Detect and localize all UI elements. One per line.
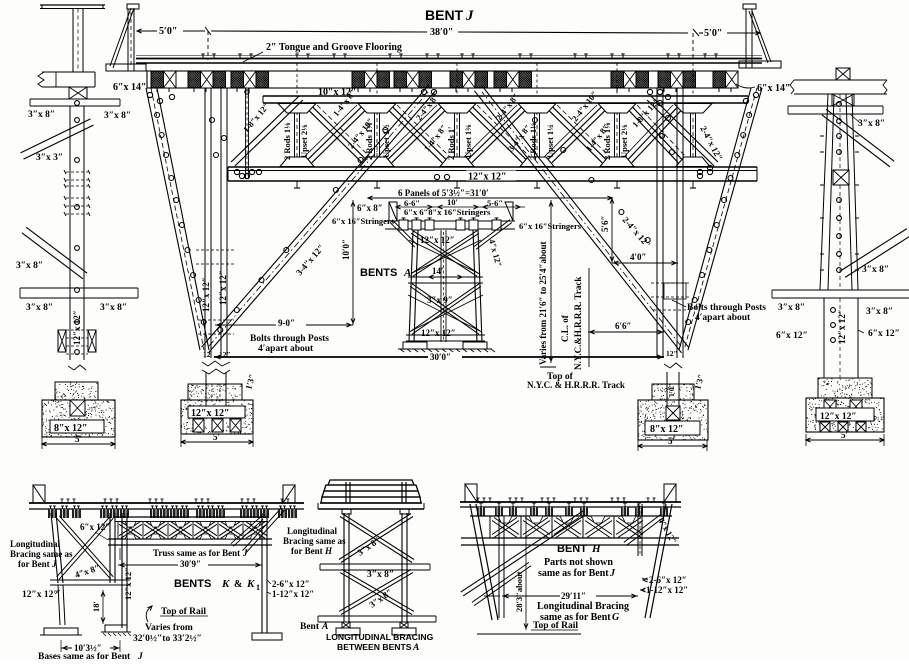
svg-text:12″x 12″: 12″x 12″ — [837, 309, 847, 344]
svg-text:12: 12 — [203, 350, 211, 359]
svg-text:Varies from: Varies from — [145, 623, 193, 633]
svg-text:2-6″x 12″: 2-6″x 12″ — [649, 575, 687, 585]
svg-text:8″x 12″: 8″x 12″ — [54, 423, 88, 434]
svg-text:BETWEEN BENTS: BETWEEN BENTS — [337, 642, 412, 652]
svg-text:6″x 6″8″x 16″Stringers: 6″x 6″8″x 16″Stringers — [404, 207, 491, 217]
svg-text:Upset 1¼: Upset 1¼ — [545, 124, 555, 158]
svg-text:4′apart about: 4′apart about — [695, 313, 751, 323]
svg-text:BENTS: BENTS — [360, 267, 397, 279]
svg-text:12″x 12″: 12″x 12″ — [468, 172, 507, 183]
svg-text:5′6″: 5′6″ — [600, 215, 610, 232]
svg-text:BENTS: BENTS — [174, 578, 211, 590]
svg-text:3″x 8″: 3″x 8″ — [104, 111, 131, 121]
svg-text:3″x 8″: 3″x 8″ — [100, 303, 127, 313]
svg-text:2 Rods 1⅛: 2 Rods 1⅛ — [282, 122, 292, 160]
svg-text:3″x 8″: 3″x 8″ — [858, 119, 885, 129]
svg-text:12″x 12″: 12″x 12″ — [820, 412, 857, 422]
svg-text:Truss same as for Bent: Truss same as for Bent — [153, 548, 240, 558]
svg-text:12″x 12″: 12″x 12″ — [191, 408, 230, 419]
svg-text:3″x 8″: 3″x 8″ — [866, 307, 893, 317]
svg-text:Bolts through Posts: Bolts through Posts — [250, 334, 329, 344]
svg-text:5′: 5′ — [668, 436, 675, 446]
svg-text:LONGITUDINAL BRACING: LONGITUDINAL BRACING — [326, 632, 434, 642]
svg-text:1-12″x 12″: 1-12″x 12″ — [272, 589, 314, 599]
svg-text:3″x 8″: 3″x 8″ — [28, 110, 55, 120]
svg-text:G: G — [612, 612, 620, 623]
svg-text:12″x 12″: 12″x 12″ — [218, 270, 228, 305]
svg-text:K: K — [246, 578, 255, 590]
svg-text:18′: 18′ — [91, 601, 101, 612]
svg-text:N.Y.C. & H.R.R.R. Track: N.Y.C. & H.R.R.R. Track — [527, 380, 625, 390]
svg-text:same as for Bent: same as for Bent — [538, 568, 609, 579]
svg-text:J: J — [137, 652, 143, 661]
svg-text:30′9″: 30′9″ — [180, 559, 201, 569]
svg-text:3″x 8″: 3″x 8″ — [862, 265, 889, 275]
svg-text:A: A — [403, 267, 411, 279]
svg-text:Upset 2⅛: Upset 2⅛ — [619, 124, 629, 158]
svg-text:14′: 14′ — [432, 266, 444, 276]
svg-text:30′0″: 30′0″ — [430, 352, 451, 362]
svg-text:Bracing same as: Bracing same as — [283, 536, 346, 546]
svg-text:12″: 12″ — [219, 350, 231, 359]
svg-text:&: & — [234, 579, 242, 590]
svg-text:3″x 8″: 3″x 8″ — [16, 261, 43, 271]
svg-text:6″x 12″: 6″x 12″ — [868, 329, 900, 339]
svg-text:12″x 12″: 12″x 12″ — [421, 328, 456, 338]
svg-text:Upset 2⅛: Upset 2⅛ — [299, 124, 309, 158]
svg-text:10′0″: 10′0″ — [341, 239, 351, 260]
svg-text:for Bent: for Bent — [18, 559, 50, 569]
svg-text:2″ Tongue and Groove Flooring: 2″ Tongue and Groove Flooring — [266, 42, 402, 53]
svg-text:BENT: BENT — [557, 543, 587, 555]
svg-text:for Bent: for Bent — [291, 546, 323, 556]
svg-text:12″x 12″: 12″x 12″ — [420, 235, 455, 245]
svg-text:A: A — [321, 622, 328, 632]
svg-text:6″x 14″: 6″x 14″ — [113, 82, 147, 93]
svg-text:N.Y.C.&H.R.R.R. Track: N.Y.C.&H.R.R.R. Track — [573, 277, 583, 370]
svg-text:38′0″: 38′0″ — [430, 27, 453, 38]
svg-text:3″x 8″: 3″x 8″ — [26, 303, 53, 313]
svg-text:4′apart about: 4′apart about — [258, 344, 314, 354]
svg-text:4′0″: 4′0″ — [630, 252, 647, 262]
svg-text:C.L. of: C.L. of — [560, 314, 570, 342]
svg-text:29′11″: 29′11″ — [561, 591, 586, 601]
svg-text:3″x 3″: 3″x 3″ — [36, 153, 63, 163]
svg-text:1-12″x 12″: 1-12″x 12″ — [646, 585, 688, 595]
svg-text:J: J — [242, 548, 248, 558]
svg-text:Bolts through Posts: Bolts through Posts — [687, 303, 766, 313]
svg-text:5′: 5′ — [213, 432, 220, 442]
svg-text:2-6″x 12″: 2-6″x 12″ — [272, 579, 310, 589]
svg-text:28′3″about: 28′3″about — [514, 571, 524, 612]
svg-text:6″x 8″: 6″x 8″ — [357, 203, 383, 213]
svg-text:H: H — [324, 546, 333, 556]
svg-text:3″x 9″: 3″x 9″ — [427, 295, 453, 305]
svg-text:12″x 12″: 12″x 12″ — [22, 590, 59, 600]
svg-text:5′0″: 5′0″ — [704, 28, 722, 39]
svg-text:3″x 8″: 3″x 8″ — [778, 303, 805, 313]
svg-text:Parts not shown: Parts not shown — [544, 557, 613, 568]
svg-text:Top of Rail: Top of Rail — [533, 621, 578, 631]
svg-text:6 Panels of 5′3½″=31′0′: 6 Panels of 5′3½″=31′0′ — [398, 188, 489, 198]
svg-text:Bases same as for Bent: Bases same as for Bent — [38, 652, 131, 661]
svg-text:K: K — [221, 578, 230, 590]
svg-text:6″x 12″: 6″x 12″ — [776, 331, 808, 341]
svg-text:5′0″: 5′0″ — [159, 26, 177, 37]
svg-text:J: J — [609, 568, 616, 579]
svg-text:A: A — [412, 643, 419, 653]
svg-text:1: 1 — [256, 583, 260, 592]
svg-text:J: J — [465, 8, 474, 24]
svg-text:6″x 16″Stringers: 6″x 16″Stringers — [519, 221, 582, 231]
svg-text:32′0½″to 33′2½″: 32′0½″to 33′2½″ — [133, 634, 202, 644]
svg-text:Bracing same as: Bracing same as — [10, 549, 73, 559]
svg-text:5′: 5′ — [75, 434, 82, 444]
svg-text:H: H — [591, 543, 601, 555]
svg-text:6″x 12″: 6″x 12″ — [80, 522, 110, 532]
svg-text:12″x 12″: 12″x 12″ — [123, 567, 133, 600]
svg-text:Longitudinal: Longitudinal — [287, 526, 338, 536]
svg-text:5′: 5′ — [841, 430, 848, 440]
svg-text:1′0″: 1′0″ — [667, 383, 676, 397]
svg-text:Top of Rail: Top of Rail — [161, 607, 206, 617]
svg-text:2 Rods 1′: 2 Rods 1′ — [446, 126, 456, 160]
svg-text:Longitudinal: Longitudinal — [10, 539, 61, 549]
svg-text:Longitudinal Bracing: Longitudinal Bracing — [537, 601, 629, 612]
svg-text:10′: 10′ — [447, 197, 458, 207]
svg-text:12″x 12″: 12″x 12″ — [72, 310, 82, 345]
svg-text:BENT: BENT — [425, 7, 464, 23]
svg-text:2 Rods 1⅛: 2 Rods 1⅛ — [602, 122, 612, 160]
svg-text:12″: 12″ — [666, 349, 678, 358]
svg-text:8″x 12″: 8″x 12″ — [650, 424, 684, 435]
svg-text:Upset 1⅜: Upset 1⅜ — [463, 124, 473, 158]
svg-text:9-0″: 9-0″ — [278, 318, 295, 328]
svg-text:Varies from 21′6″ to 25′4″abou: Varies from 21′6″ to 25′4″about — [538, 241, 548, 365]
svg-text:12″x 12″: 12″x 12″ — [201, 277, 211, 312]
svg-text:6′6″: 6′6″ — [615, 321, 632, 331]
svg-text:J: J — [51, 559, 57, 569]
svg-text:Bent: Bent — [300, 622, 320, 632]
svg-text:3″x 8″: 3″x 8″ — [367, 570, 394, 580]
